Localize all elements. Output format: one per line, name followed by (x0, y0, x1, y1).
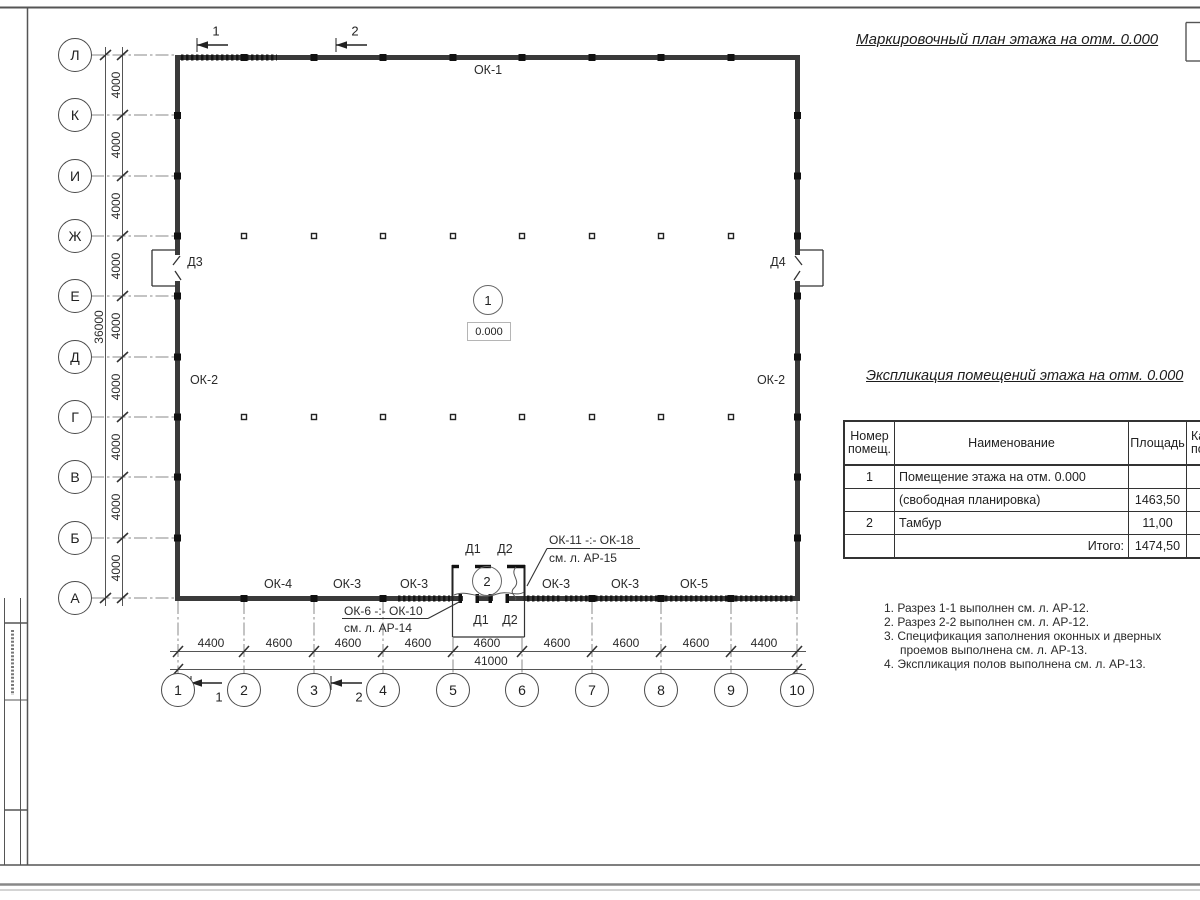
window-label-ok1: ОК-1 (474, 63, 502, 77)
window-label-bottom-2: ОК-3 (333, 577, 361, 591)
dim-row-1: 4000 (109, 72, 123, 99)
drawing-sheet: { "titles": { "plan": "Маркировочный пла… (0, 0, 1200, 900)
axis-row-d: Д (58, 340, 92, 374)
plan-title: Маркировочный план этажа на отм. 0.000 (856, 31, 1158, 48)
note-line: 1. Разрез 1-1 выполнен см. л. АР-12. (884, 601, 1089, 615)
dim-col-6: 4600 (544, 636, 571, 650)
axis-row-l: Л (58, 38, 92, 72)
axis-col-10: 10 (780, 673, 814, 707)
axis-row-g: Г (58, 400, 92, 434)
callout-top-line1: ОК-11 -:- ОК-18 (549, 533, 633, 547)
table-header-area: Площадь (1129, 422, 1187, 466)
dim-row-5: 4000 (109, 313, 123, 340)
axis-row-e: Е (58, 279, 92, 313)
door-label-d4: Д4 (770, 255, 785, 269)
door-label-d2-bottom: Д2 (502, 613, 517, 627)
note-line: проемов выполнена см. л. АР-13. (900, 643, 1087, 657)
window-label-bottom-4: ОК-3 (542, 577, 570, 591)
section-mark-bottom-2: 2 (355, 690, 362, 705)
table-row: 1 Помещение этажа на отм. 0.000 (845, 466, 1200, 489)
axis-col-7: 7 (575, 673, 609, 707)
section-mark-bottom-1: 1 (215, 690, 222, 705)
table-header-category: Ка по (1187, 422, 1200, 466)
elevation-mark: 0.000 (467, 322, 511, 341)
explication-table: Номер помещ. Наименование Площадь Ка по … (843, 420, 1200, 559)
table-title: Экспликация помещений этажа на отм. 0.00… (866, 368, 1183, 384)
axis-row-b: Б (58, 521, 92, 555)
dim-col-4: 4600 (405, 636, 432, 650)
axis-row-v: В (58, 460, 92, 494)
door-label-d2-top: Д2 (497, 542, 512, 556)
dim-col-1: 4400 (198, 636, 225, 650)
door-d3-shape (152, 250, 182, 286)
door-label-d3: Д3 (187, 255, 202, 269)
window-label-ok2-left: ОК-2 (190, 373, 218, 387)
door-d4-shape (793, 250, 823, 286)
axis-row-a: А (58, 581, 92, 615)
callout-top-line2: см. л. АР-15 (549, 551, 617, 565)
table-header-number: Номер помещ. (845, 422, 895, 466)
table-header-row: Номер помещ. Наименование Площадь Ка по (845, 422, 1200, 466)
axis-col-5: 5 (436, 673, 470, 707)
window-label-bottom-6: ОК-5 (680, 577, 708, 591)
axis-col-1: 1 (161, 673, 195, 707)
section-mark-top-1: 1 (212, 24, 219, 39)
table-header-name: Наименование (895, 422, 1129, 466)
note-line: 4. Экспликация полов выполнена см. л. АР… (884, 657, 1146, 671)
section-marks (191, 38, 367, 690)
axis-row-i: И (58, 159, 92, 193)
dim-row-6: 4000 (109, 374, 123, 401)
window-label-bottom-1: ОК-4 (264, 577, 292, 591)
note-line: 3. Спецификация заполнения оконных и две… (884, 629, 1161, 643)
callout-bottom-line1: ОК-6 -:- ОК-10 (344, 604, 423, 618)
dim-col-8: 4600 (683, 636, 710, 650)
dim-col-5: 4600 (474, 636, 501, 650)
window-label-bottom-5: ОК-3 (611, 577, 639, 591)
dim-col-2: 4600 (266, 636, 293, 650)
table-row: 2 Тамбур 11,00 (845, 512, 1200, 535)
callout-bottom-line2: см. л. АР-14 (344, 621, 412, 635)
axis-col-9: 9 (714, 673, 748, 707)
axis-col-8: 8 (644, 673, 678, 707)
axis-row-k: К (58, 98, 92, 132)
door-label-d1-top: Д1 (465, 542, 480, 556)
dim-row-2: 4000 (109, 132, 123, 159)
dim-col-9: 4400 (751, 636, 778, 650)
window-label-ok2-right: ОК-2 (757, 373, 785, 387)
axis-row-zh: Ж (58, 219, 92, 253)
note-line: 2. Разрез 2-2 выполнен см. л. АР-12. (884, 615, 1089, 629)
dim-row-9: 4000 (109, 555, 123, 582)
dim-col-total: 41000 (474, 654, 507, 668)
room-marker-2: 2 (472, 566, 502, 596)
dim-row-3: 4000 (109, 193, 123, 220)
axis-col-4: 4 (366, 673, 400, 707)
room-marker-1: 1 (473, 285, 503, 315)
dim-col-3: 4600 (335, 636, 362, 650)
table-total-row: Итого: 1474,50 (845, 535, 1200, 557)
dim-row-total: 36000 (92, 310, 106, 343)
sheet-corner-box (1186, 23, 1200, 62)
axis-col-3: 3 (297, 673, 331, 707)
table-row: (свободная планировка) 1463,50 (845, 489, 1200, 512)
dim-row-4: 4000 (109, 253, 123, 280)
dim-row-7: 4000 (109, 434, 123, 461)
door-label-d1-bottom: Д1 (473, 613, 488, 627)
section-mark-top-2: 2 (351, 24, 358, 39)
window-label-bottom-3: ОК-3 (400, 577, 428, 591)
dim-row-8: 4000 (109, 494, 123, 521)
axis-col-6: 6 (505, 673, 539, 707)
axis-col-2: 2 (227, 673, 261, 707)
dim-col-7: 4600 (613, 636, 640, 650)
